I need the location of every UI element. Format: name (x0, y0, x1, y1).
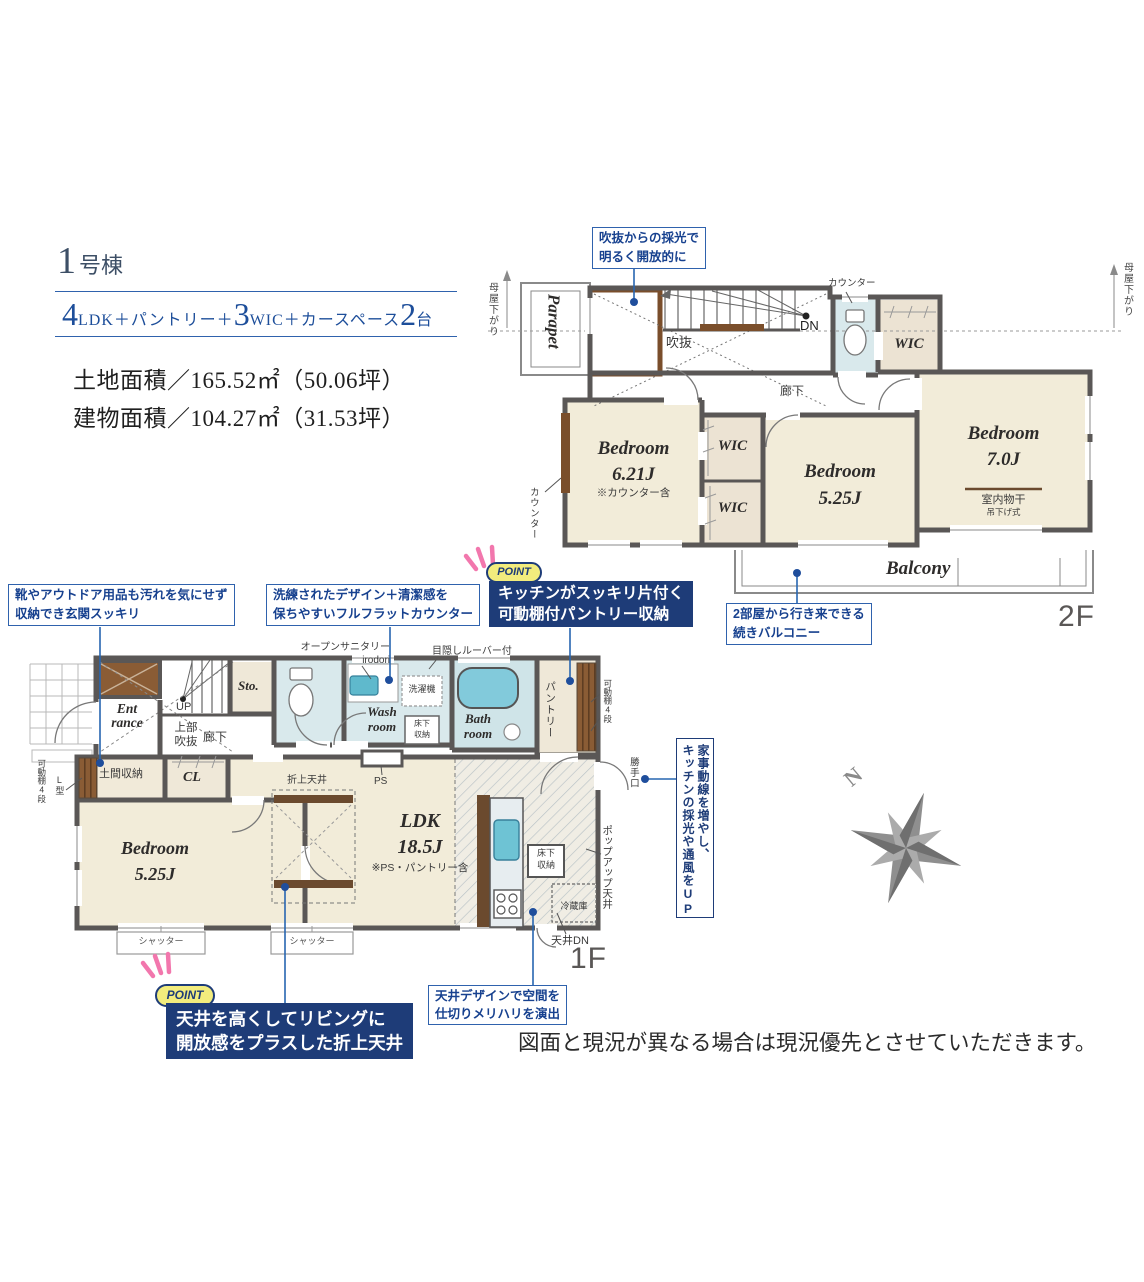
spec-text-3: 台 (416, 312, 433, 329)
open-sanitary-label: オープンサニタリー irodori (290, 641, 390, 667)
orage-ceiling-label: 折上天井 (287, 775, 327, 787)
ldk-name: LDK (375, 810, 465, 833)
storage-label: Sto. (238, 679, 259, 694)
balcony-label: Balcony (886, 558, 950, 580)
spec-num-wic: 3 (234, 296, 250, 332)
laundry-sub-label: 吊下げ式 (917, 508, 1090, 518)
washer-label: 洗濯機 (404, 684, 440, 694)
callout-balcony-line2: 続きバルコニー (733, 624, 865, 643)
callout-counter-line1: 洗練されたデザイン＋清潔感を (273, 586, 473, 605)
bedroom1-note: ※カウンター含 (565, 487, 702, 499)
shelf-right-label: 可動棚4段 (602, 679, 612, 723)
ldk-size: 18.5J (375, 836, 465, 859)
floor1-label: 1F (570, 942, 607, 976)
point-pantry-line2: 可動棚付パントリー収納 (498, 604, 684, 625)
corridor-2f-label: 廊下 (780, 385, 804, 399)
bathroom-label: Bath room (448, 711, 508, 741)
pantry-label: パントリー (544, 681, 556, 739)
bedroom1-size: 6.21J (565, 464, 702, 486)
corridor-1f-label: 廊下 (203, 731, 227, 745)
counter-top-label: カウンター (828, 279, 876, 290)
wic-b-label: WIC (702, 500, 763, 517)
l-type-label: L型 (54, 775, 64, 796)
doma-label: 土間収納 (99, 768, 143, 781)
up-label: UP (176, 701, 191, 714)
point-ceiling-line1: 天井を高くしてリビングに (176, 1007, 403, 1031)
page-title: 1号棟 (57, 240, 123, 284)
callout-void: 吹抜からの採光で 明るく開放的に (592, 227, 706, 269)
callout-kaji: 家事動線を増やし、 キッチンの採光や通風をUP (676, 738, 714, 918)
void-label: 吹抜 (666, 336, 692, 351)
bedroom3-name: Bedroom (917, 423, 1090, 445)
upper-void-label: 上部 吹抜 (172, 721, 200, 749)
shutter2-label: シャッター (271, 936, 353, 946)
floorplan-flyer: 1号棟 4LDK＋パントリー＋3WIC＋カースペース2台 土地面積／165.52… (0, 0, 1144, 1282)
point-ceiling: 天井を高くしてリビングに 開放感をプラスした折上天井 (166, 1003, 413, 1059)
point-pantry: キッチンがスッキリ片付く 可動棚付パントリー収納 (489, 581, 693, 627)
spec-text-2: WIC＋カースペース (250, 312, 400, 329)
louver-label: 目隠しルーバー付 (432, 646, 512, 658)
lot-suffix: 号棟 (79, 253, 123, 278)
callout-counter: 洗練されたデザイン＋清潔感を 保ちやすいフルフラットカウンター (266, 584, 480, 626)
callout-ceiling-design-line1: 天井デザインで空間を (435, 987, 560, 1005)
wic-top-label: WIC (878, 336, 940, 353)
parapet-label: Parapet (544, 294, 564, 349)
ldk-note: ※PS・パントリー含 (350, 862, 490, 874)
shutter1-label: シャッター (117, 936, 205, 946)
shelf-left-label: 可動棚4段 (36, 759, 46, 803)
callout-entrance-line2: 収納でき玄関スッキリ (15, 605, 228, 624)
entrance-label: Ent rance (104, 702, 150, 730)
lot-number: 1 (57, 240, 76, 282)
callout-entrance-line1: 靴やアウトドア用品も汚れを気にせず (15, 586, 228, 605)
floor2-label: 2F (1058, 600, 1095, 634)
bedroom-1f-size: 5.25J (90, 864, 220, 885)
callout-kaji-line2: キッチンの採光や通風をUP (680, 744, 695, 912)
callout-void-line1: 吹抜からの採光で (599, 229, 699, 248)
spec-line: 4LDK＋パントリー＋3WIC＋カースペース2台 (62, 296, 433, 333)
point-badge-pantry: POINT (486, 562, 542, 583)
popup-ceiling-label: ポップアップ天井 (601, 825, 613, 909)
disclaimer: 図面と現況が異なる場合は現況優先とさせていただきます。 (518, 1031, 1096, 1056)
bedroom-1f-name: Bedroom (90, 838, 220, 859)
callout-kaji-line1: 家事動線を増やし、 (695, 744, 710, 912)
spec-num-cars: 2 (400, 296, 416, 332)
counter-left-label: カウンター (527, 487, 538, 540)
spec-num-ldk: 4 (62, 296, 78, 332)
laundry-label: 室内物干 (917, 494, 1090, 507)
moya-left-label: 母屋下がり (486, 282, 498, 337)
open-sanitary-line2: irodori (290, 654, 390, 667)
callout-entrance: 靴やアウトドア用品も汚れを気にせず 収納でき玄関スッキリ (8, 584, 235, 626)
callout-balcony: 2部屋から行き来できる 続きバルコニー (726, 603, 872, 645)
bedroom2-name: Bedroom (763, 461, 917, 483)
callout-counter-line2: 保ちやすいフルフラットカウンター (273, 605, 473, 624)
compass-rose (833, 775, 979, 921)
bedroom1-name: Bedroom (565, 438, 702, 460)
wic-a-label: WIC (702, 438, 763, 455)
callout-ceiling-design-line2: 仕切りメリハリを演出 (435, 1005, 560, 1023)
callout-ceiling-design: 天井デザインで空間を 仕切りメリハリを演出 (428, 985, 567, 1025)
callout-balcony-line1: 2部屋から行き来できる (733, 605, 865, 624)
bedroom3-size: 7.0J (917, 449, 1090, 471)
callout-void-line2: 明るく開放的に (599, 248, 699, 267)
ps-label: PS (374, 776, 387, 788)
backdoor-label: 勝手口 (627, 757, 638, 789)
floorplan-linework (0, 0, 1144, 1282)
point-ceiling-line2: 開放感をプラスした折上天井 (176, 1031, 403, 1055)
fridge-label: 冷蔵庫 (553, 901, 595, 911)
underfloor-wash-label: 床下 収納 (407, 719, 437, 740)
dn-label: DN (800, 319, 819, 334)
open-sanitary-line1: オープンサニタリー (290, 641, 390, 654)
spec-text-1: LDK＋パントリー＋ (78, 312, 234, 329)
cl-label: CL (183, 770, 201, 786)
bedroom2-size: 5.25J (763, 488, 917, 510)
point-pantry-line1: キッチンがスッキリ片付く (498, 583, 684, 604)
moya-right-label: 母屋下がり (1121, 262, 1133, 317)
washroom-label: Wash room (360, 704, 404, 734)
underfloor-kitchen-label: 床下 収納 (529, 847, 563, 871)
